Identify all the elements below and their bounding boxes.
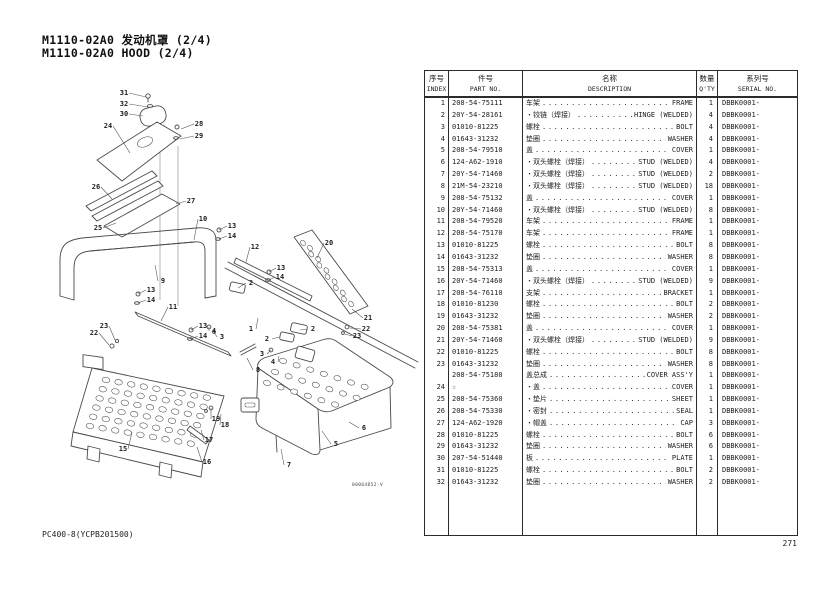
cell-part-no: 20Y-54-71460 [449,335,523,347]
callout-leader-line [256,318,258,329]
cell-description: 支架BRACKET [523,288,697,300]
leader-dots [591,169,636,181]
callout-leader-line [180,136,194,139]
callout-number: 19 [212,415,220,423]
cell-description: 螺栓BOLT [523,299,697,311]
footer-model-code: PC400-8(YCPB201500) [42,530,134,539]
callout-leader-line [281,449,284,465]
description-en: STUD (WELDED) [638,181,693,193]
description-cn: 垫圈 [526,477,540,489]
cell-serial-no: DBBK0001- [718,382,797,394]
leader-dots [535,323,670,335]
cell-index: 15 [425,264,449,276]
description-cn: ・双头螺栓（焊接） [526,157,589,169]
description-cn: 螺栓 [526,240,540,252]
cell-qty: 2 [697,169,718,181]
callout-number: 20 [325,239,333,247]
col-header-part-no: 件号 PART NO. [449,71,523,98]
leader-dots [535,193,670,205]
callout-leader-line [129,93,146,97]
cell-serial-no: DBBK0001- [718,157,797,169]
cell-description: 螺栓BOLT [523,347,697,359]
callout-number: 32 [120,100,128,108]
cell-description: ・双头螺栓（焊接）STUD (WELDED) [523,205,697,217]
description-cn: 盖 [526,193,533,205]
callout-leader-line [349,422,359,428]
description-en: COVER ASS'Y [647,370,693,382]
callout-leader-line [194,219,198,240]
cell-qty: 18 [697,181,718,193]
cell-description: 盖COVER [523,264,697,276]
cell-description: ・密封SEAL [523,406,697,418]
cell-serial-no: DBBK0001- [718,394,797,406]
description-en: COVER [672,382,693,394]
cell-description: ・帽盖CAP [523,418,697,430]
cell-qty: 4 [697,110,718,122]
callout-number: 14 [276,273,284,281]
top-cover-panel [97,122,181,181]
callout-number: 13 [147,286,155,294]
callout-number: 30 [120,110,128,118]
description-cn: 垫圈 [526,134,540,146]
description-cn: 螺栓 [526,465,540,477]
leader-dots [591,181,636,193]
cell-description: 车架FRAME [523,216,697,228]
cell-qty: 2 [697,299,718,311]
cell-serial-no: DBBK0001- [718,323,797,335]
cell-serial-no: DBBK0001- [718,110,797,122]
cell-qty: 2 [697,477,718,489]
leader-dots [535,145,670,157]
cell-part-no: 01010-81225 [449,465,523,477]
callout-number: 3 [260,350,264,358]
cell-index: 28 [425,430,449,442]
cell-qty: 1 [697,98,718,110]
cell-qty: 1 [697,406,718,418]
description-cn: 螺栓 [526,299,540,311]
description-cn: ・铰链（焊接） [526,110,575,122]
cell-index: 5 [425,145,449,157]
cell-serial-no: DBBK0001- [718,145,797,157]
cell-index: 18 [425,299,449,311]
cell-serial-no: DBBK0001- [718,311,797,323]
page-number: 271 [700,539,797,548]
cell-description: 螺栓BOLT [523,430,697,442]
cell-serial-no: DBBK0001- [718,98,797,110]
cell-index: 21 [425,335,449,347]
leader-dots [542,134,666,146]
leader-dots [542,288,661,300]
callout-leader-line [129,104,148,107]
callout-number: 2 [265,335,269,343]
callout-number: 1 [249,325,253,333]
leader-dots [535,453,670,465]
table-filler-cell [697,489,718,535]
cell-part-no: 208-54-75313 [449,264,523,276]
cell-serial-no: DBBK0001- [718,418,797,430]
cell-index: 19 [425,311,449,323]
cell-part-no: 01643-31232 [449,359,523,371]
description-cn: 垫圈 [526,441,540,453]
cell-part-no: 20Y-54-71460 [449,169,523,181]
callout-number: 23 [100,322,108,330]
page-title: M1110-02A0 发动机罩 (2/4) M1110-02A0 HOOD (2… [42,34,212,60]
description-en: FRAME [672,216,693,228]
cell-description: 垫圈WASHER [523,441,697,453]
leader-dots [577,110,632,122]
callout-number: 8 [256,366,260,374]
cell-index: 1 [425,98,449,110]
cell-index: 24 [425,382,449,394]
leader-dots [542,477,666,489]
leader-dots [542,382,670,394]
leader-dots [549,406,674,418]
description-en: COVER [672,264,693,276]
callout-number: 9 [161,277,165,285]
description-cn: ・双头螺栓（焊接） [526,169,589,181]
description-en: CAP [680,418,693,430]
cell-qty: 2 [697,311,718,323]
cell-description: ・双头螺栓（焊接）STUD (WELDED) [523,335,697,347]
table-filler-cell [449,489,523,535]
cell-part-no: 01010-81230 [449,299,523,311]
leader-dots [542,299,674,311]
cell-part-no: 207-54-51440 [449,453,523,465]
description-en: STUD (WELDED) [638,276,693,288]
cell-index: 8 [425,181,449,193]
cell-serial-no: DBBK0001- [718,169,797,181]
cell-qty: 1 [697,145,718,157]
cell-qty: 1 [697,453,718,465]
description-cn: 板 [526,453,533,465]
cell-part-no: 208-54-75132 [449,193,523,205]
leader-dots [542,98,670,110]
cell-serial-no: DBBK0001- [718,406,797,418]
cell-index: 7 [425,169,449,181]
callout-leader-line [219,236,227,239]
cell-qty: 1 [697,394,718,406]
cell-part-no: 208-54-75330 [449,406,523,418]
table-filler-cell [425,489,449,535]
cell-part-no: 01010-81225 [449,347,523,359]
description-en: BOLT [676,347,693,359]
callout-number: 22 [90,329,98,337]
cell-description: 垫圈WASHER [523,134,697,146]
description-cn: ・双头螺栓（焊接） [526,205,589,217]
cell-description: 螺栓BOLT [523,465,697,477]
cell-qty: 2 [697,465,718,477]
cell-part-no: 01643-31232 [449,477,523,489]
cell-qty: 8 [697,359,718,371]
col-header-index: 序号 INDEX [425,71,449,98]
cell-serial-no: DBBK0001- [718,264,797,276]
callout-number: 21 [364,314,372,322]
cell-qty: 8 [697,252,718,264]
callout-leader-line [322,431,331,444]
cell-part-no: 20Y-54-71460 [449,276,523,288]
callout-number: 11 [169,303,177,311]
cell-qty: 1 [697,216,718,228]
leader-dots [542,347,674,359]
description-en: STUD (WELDED) [638,169,693,181]
cell-part-no: 20Y-54-71460 [449,205,523,217]
callout-number: 2 [311,325,315,333]
cell-index: 17 [425,288,449,300]
cell-qty: 9 [697,335,718,347]
callout-number: 29 [195,132,203,140]
cell-description: ・铰链（焊接）HINGE (WELDED) [523,110,697,122]
cell-index: 6 [425,157,449,169]
callout-number: 7 [287,461,291,469]
cell-description: ・双头螺栓（焊接）STUD (WELDED) [523,169,697,181]
callout-number: 14 [147,296,155,304]
cell-serial-no: DBBK0001- [718,299,797,311]
description-cn: 盖 [526,264,533,276]
description-cn: 车架 [526,216,540,228]
leader-dots [591,276,636,288]
cell-serial-no: DBBK0001- [718,252,797,264]
callout-number: 18 [221,421,229,429]
leader-dots [542,122,674,134]
leader-dots [542,359,666,371]
cell-part-no: ☆ [449,382,523,394]
callout-number: 14 [228,232,236,240]
callout-number: 13 [228,222,236,230]
cell-description: 板PLATE [523,453,697,465]
cell-part-no: 01643-31232 [449,441,523,453]
cell-index: 9 [425,193,449,205]
cell-description: 垫圈WASHER [523,252,697,264]
col-header-description: 名称 DESCRIPTION [523,71,697,98]
cell-part-no: 01010-81225 [449,430,523,442]
cell-part-no: 20Y-54-28161 [449,110,523,122]
callout-number: 27 [187,197,195,205]
cell-index: 12 [425,228,449,240]
description-en: BOLT [676,299,693,311]
leader-dots [549,418,678,430]
description-cn: ・双头螺栓（焊接） [526,276,589,288]
leader-dots [542,430,674,442]
leader-dots [549,370,645,382]
description-cn: 车架 [526,228,540,240]
cell-index: 30 [425,453,449,465]
description-cn: ・盖 [526,382,540,394]
cell-serial-no: DBBK0001- [718,240,797,252]
cell-qty: 1 [697,382,718,394]
cell-part-no: 208-54-75180 [449,370,523,382]
cell-index: 23 [425,359,449,371]
cell-part-no: 21M-54-23210 [449,181,523,193]
cell-qty: 1 [697,228,718,240]
cell-index: 31 [425,465,449,477]
description-en: COVER [672,145,693,157]
callout-number: 16 [203,458,211,466]
cell-part-no: 208-54-79520 [449,216,523,228]
cell-index: 14 [425,252,449,264]
cell-part-no: 208-54-79510 [449,145,523,157]
cap-part [138,94,168,128]
description-en: FRAME [672,98,693,110]
cell-serial-no: DBBK0001- [718,134,797,146]
parts-table: 序号 INDEX 件号 PART NO. 名称 DESCRIPTION 数量 Q… [424,70,798,536]
cell-description: 盖COVER [523,145,697,157]
leader-dots [535,264,670,276]
callout-number: 15 [119,445,127,453]
callout-number: 14 [199,332,207,340]
cell-qty: 6 [697,441,718,453]
cell-part-no: 208-54-75360 [449,394,523,406]
cell-serial-no: DBBK0001- [718,465,797,477]
callout-leader-line [246,247,250,262]
cell-qty: 1 [697,288,718,300]
callout-leader-line [247,358,253,370]
leader-dots [542,252,666,264]
cell-description: 螺栓BOLT [523,122,697,134]
description-en: BOLT [676,122,693,134]
callout-number: 22 [362,325,370,333]
callout-leader-line [161,307,168,321]
description-cn: 螺栓 [526,430,540,442]
description-en: STUD (WELDED) [638,157,693,169]
description-en: WASHER [668,477,693,489]
table-filler-cell [523,489,697,535]
cell-serial-no: DBBK0001- [718,453,797,465]
cell-serial-no: DBBK0001- [718,441,797,453]
callout-number: 3 [220,333,224,341]
callout-number: 13 [199,322,207,330]
cell-qty: 4 [697,157,718,169]
callout-number: 17 [205,436,213,444]
description-en: COVER [672,193,693,205]
description-cn: 车架 [526,98,540,110]
cell-serial-no: DBBK0001- [718,359,797,371]
callout-number: 12 [251,243,259,251]
description-en: COVER [672,323,693,335]
leader-dots [591,205,636,217]
cell-description: 盖COVER [523,193,697,205]
cell-serial-no: DBBK0001- [718,228,797,240]
cell-qty: 1 [697,323,718,335]
cell-part-no: 01643-31232 [449,252,523,264]
description-cn: 盖总成 [526,370,547,382]
cell-index: 10 [425,205,449,217]
callout-number: 24 [104,122,112,130]
cell-serial-no: DBBK0001- [718,181,797,193]
cell-description: 垫圈WASHER [523,359,697,371]
col-header-qty: 数量 Q'TY [697,71,718,98]
cell-qty: 8 [697,240,718,252]
cell-description: 垫圈WASHER [523,477,697,489]
col-header-serial-no: 系列号 SERIAL NO. [718,71,797,98]
cell-serial-no: DBBK0001- [718,477,797,489]
description-en: SEAL [676,406,693,418]
callout-leader-line [155,265,158,281]
cell-index: 26 [425,406,449,418]
cell-qty: 8 [697,347,718,359]
leader-dots [542,441,666,453]
callout-number: 5 [334,440,338,448]
cell-qty: 4 [697,134,718,146]
cell-description: 车架FRAME [523,228,697,240]
description-en: BRACKET [663,288,693,300]
leader-dots [542,228,670,240]
description-cn: ・密封 [526,406,547,418]
description-cn: ・垫片 [526,394,547,406]
description-en: STUD (WELDED) [638,205,693,217]
perforated-hood-panel [71,368,224,478]
cell-part-no: 208-54-75170 [449,228,523,240]
description-cn: 垫圈 [526,311,540,323]
cell-description: ・盖COVER [523,382,697,394]
cell-serial-no: DBBK0001- [718,370,797,382]
cell-index [425,370,449,382]
description-en: WASHER [668,252,693,264]
callout-number: 31 [120,89,128,97]
cell-description: 车架FRAME [523,98,697,110]
leader-dots [542,465,674,477]
cell-description: ・双头螺栓（焊接）STUD (WELDED) [523,181,697,193]
exploded-view-diagram: 3132302428292627251013141213142913141113… [28,80,428,512]
cell-serial-no: DBBK0001- [718,347,797,359]
cell-qty: 1 [697,264,718,276]
callout-number: 13 [277,264,285,272]
cell-part-no: 01010-81225 [449,122,523,134]
parts-catalog-page: M1110-02A0 发动机罩 (2/4) M1110-02A0 HOOD (2… [0,0,840,594]
leader-dots [542,240,674,252]
callout-number: 23 [353,332,361,340]
description-en: STUD (WELDED) [638,335,693,347]
cell-index: 2 [425,110,449,122]
cell-index: 25 [425,394,449,406]
description-en: BOLT [676,430,693,442]
description-en: FRAME [672,228,693,240]
callout-leader-line [99,333,109,345]
description-cn: ・双头螺栓（焊接） [526,181,589,193]
description-cn: ・帽盖 [526,418,547,430]
cell-serial-no: DBBK0001- [718,335,797,347]
cell-description: 盖总成COVER ASS'Y [523,370,697,382]
callout-number: 4 [212,327,216,335]
callout-number: 2 [249,279,253,287]
cell-index: 16 [425,276,449,288]
cell-qty: 3 [697,418,718,430]
leader-dots [542,216,670,228]
hood-frame [60,228,221,370]
cell-part-no: 208-54-75111 [449,98,523,110]
leader-dots [591,157,636,169]
description-en: WASHER [668,359,693,371]
cell-serial-no: DBBK0001- [718,288,797,300]
description-cn: ・双头螺栓（焊接） [526,335,589,347]
cell-qty: 8 [697,205,718,217]
description-cn: 螺栓 [526,347,540,359]
callout-number: 6 [362,424,366,432]
cell-index: 29 [425,441,449,453]
description-en: BOLT [676,465,693,477]
description-cn: 盖 [526,323,533,335]
cell-index: 11 [425,216,449,228]
cell-index: 27 [425,418,449,430]
cell-index: 32 [425,477,449,489]
cell-serial-no: DBBK0001- [718,193,797,205]
callout-leader-line [109,326,115,340]
leader-dots [549,394,670,406]
callout-number: 28 [195,120,203,128]
cell-index: 13 [425,240,449,252]
cell-description: 螺栓BOLT [523,240,697,252]
leader-dots [591,335,636,347]
figure-code: 00064852-V [352,482,383,488]
